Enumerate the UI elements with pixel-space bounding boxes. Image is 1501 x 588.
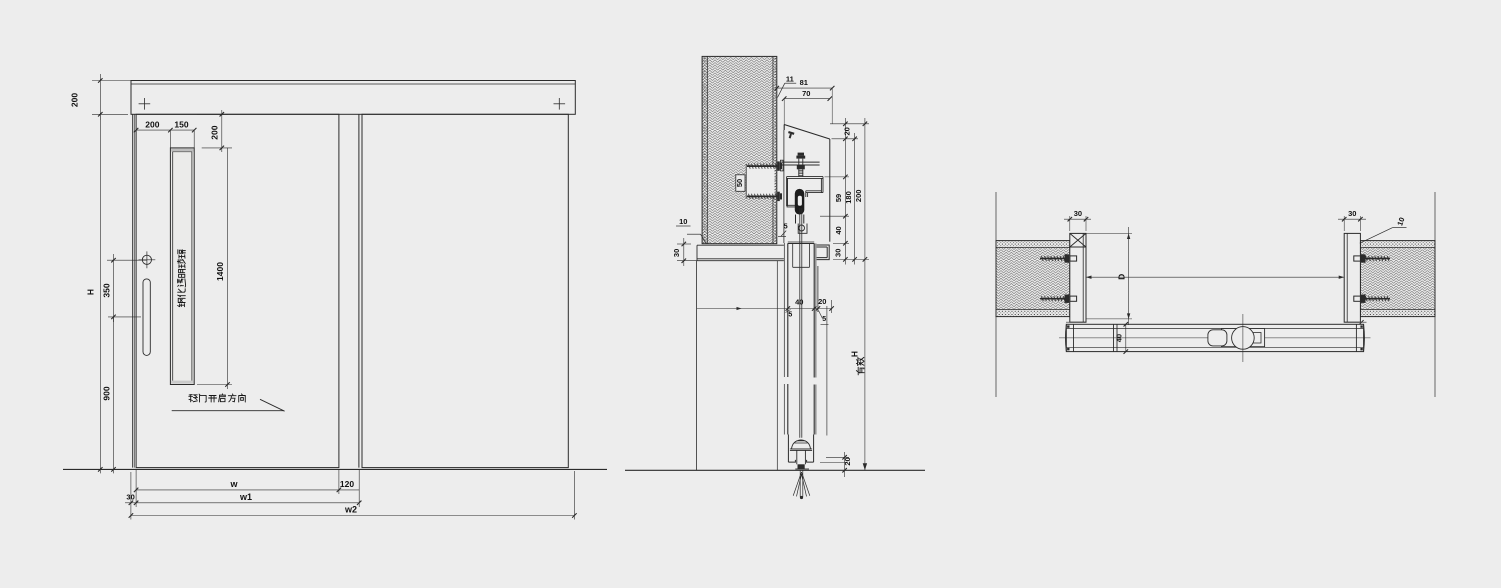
svg-text:20: 20: [818, 297, 826, 306]
svg-text:120: 120: [340, 479, 354, 489]
svg-text:w2: w2: [344, 505, 357, 515]
svg-text:350: 350: [101, 283, 111, 297]
svg-text:20: 20: [843, 127, 852, 135]
svg-text:H: H: [86, 289, 96, 295]
svg-text:40: 40: [795, 298, 803, 307]
svg-text:81: 81: [800, 78, 808, 87]
svg-text:200: 200: [145, 119, 159, 129]
svg-text:59: 59: [834, 194, 843, 202]
svg-text:200: 200: [70, 93, 80, 107]
svg-text:40: 40: [834, 226, 843, 234]
svg-text:30: 30: [672, 249, 681, 257]
svg-text:200: 200: [854, 190, 863, 203]
svg-text:5: 5: [822, 316, 826, 323]
svg-text:30: 30: [1074, 209, 1082, 218]
svg-text:H: H: [850, 351, 860, 357]
svg-text:5: 5: [788, 312, 792, 319]
svg-text:10: 10: [1395, 216, 1406, 227]
svg-text:30: 30: [834, 249, 843, 257]
svg-text:w: w: [229, 479, 238, 489]
svg-text:w1: w1: [239, 492, 252, 502]
svg-text:150: 150: [174, 119, 188, 129]
svg-text:11: 11: [786, 74, 794, 83]
svg-text:30: 30: [1348, 209, 1356, 218]
svg-text:180: 180: [844, 191, 853, 204]
svg-text:40: 40: [1115, 334, 1124, 342]
svg-text:1400: 1400: [215, 262, 225, 281]
svg-text:D: D: [1116, 274, 1126, 280]
svg-text:20: 20: [843, 457, 852, 465]
svg-text:900: 900: [101, 386, 111, 400]
svg-text:30: 30: [126, 492, 134, 501]
svg-text:10: 10: [679, 217, 687, 226]
svg-text:50: 50: [735, 179, 744, 187]
svg-text:70: 70: [802, 89, 810, 98]
svg-text:200: 200: [209, 125, 219, 139]
